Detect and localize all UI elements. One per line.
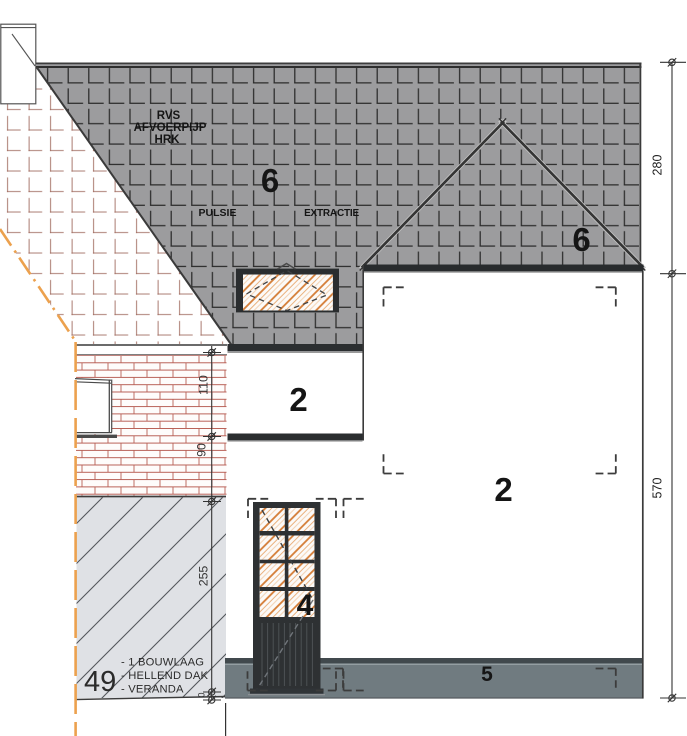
svg-text:90: 90 [195, 443, 209, 457]
svg-text:- HELLEND DAK: - HELLEND DAK [121, 670, 208, 682]
svg-text:570: 570 [651, 478, 665, 499]
svg-text:PULSIE: PULSIE [199, 207, 237, 219]
svg-text:RVS: RVS [157, 110, 181, 122]
svg-text:4: 4 [297, 589, 314, 622]
svg-text:2: 2 [494, 471, 512, 508]
svg-text:255: 255 [197, 566, 211, 587]
svg-text:EXTRACTIE: EXTRACTIE [304, 208, 359, 219]
svg-text:49: 49 [84, 666, 116, 698]
svg-text:110: 110 [197, 375, 211, 395]
svg-text:0: 0 [197, 692, 207, 697]
svg-text:2: 2 [289, 381, 307, 418]
svg-text:280: 280 [651, 155, 665, 176]
svg-text:- 1 BOUWLAAG: - 1 BOUWLAAG [121, 657, 204, 669]
svg-text:6: 6 [261, 162, 279, 199]
svg-text:5: 5 [481, 663, 493, 686]
svg-text:HRK: HRK [155, 134, 181, 146]
svg-text:AFVOERPIJP: AFVOERPIJP [134, 122, 207, 134]
svg-text:- VERANDA: - VERANDA [121, 684, 184, 696]
svg-text:6: 6 [572, 221, 590, 258]
